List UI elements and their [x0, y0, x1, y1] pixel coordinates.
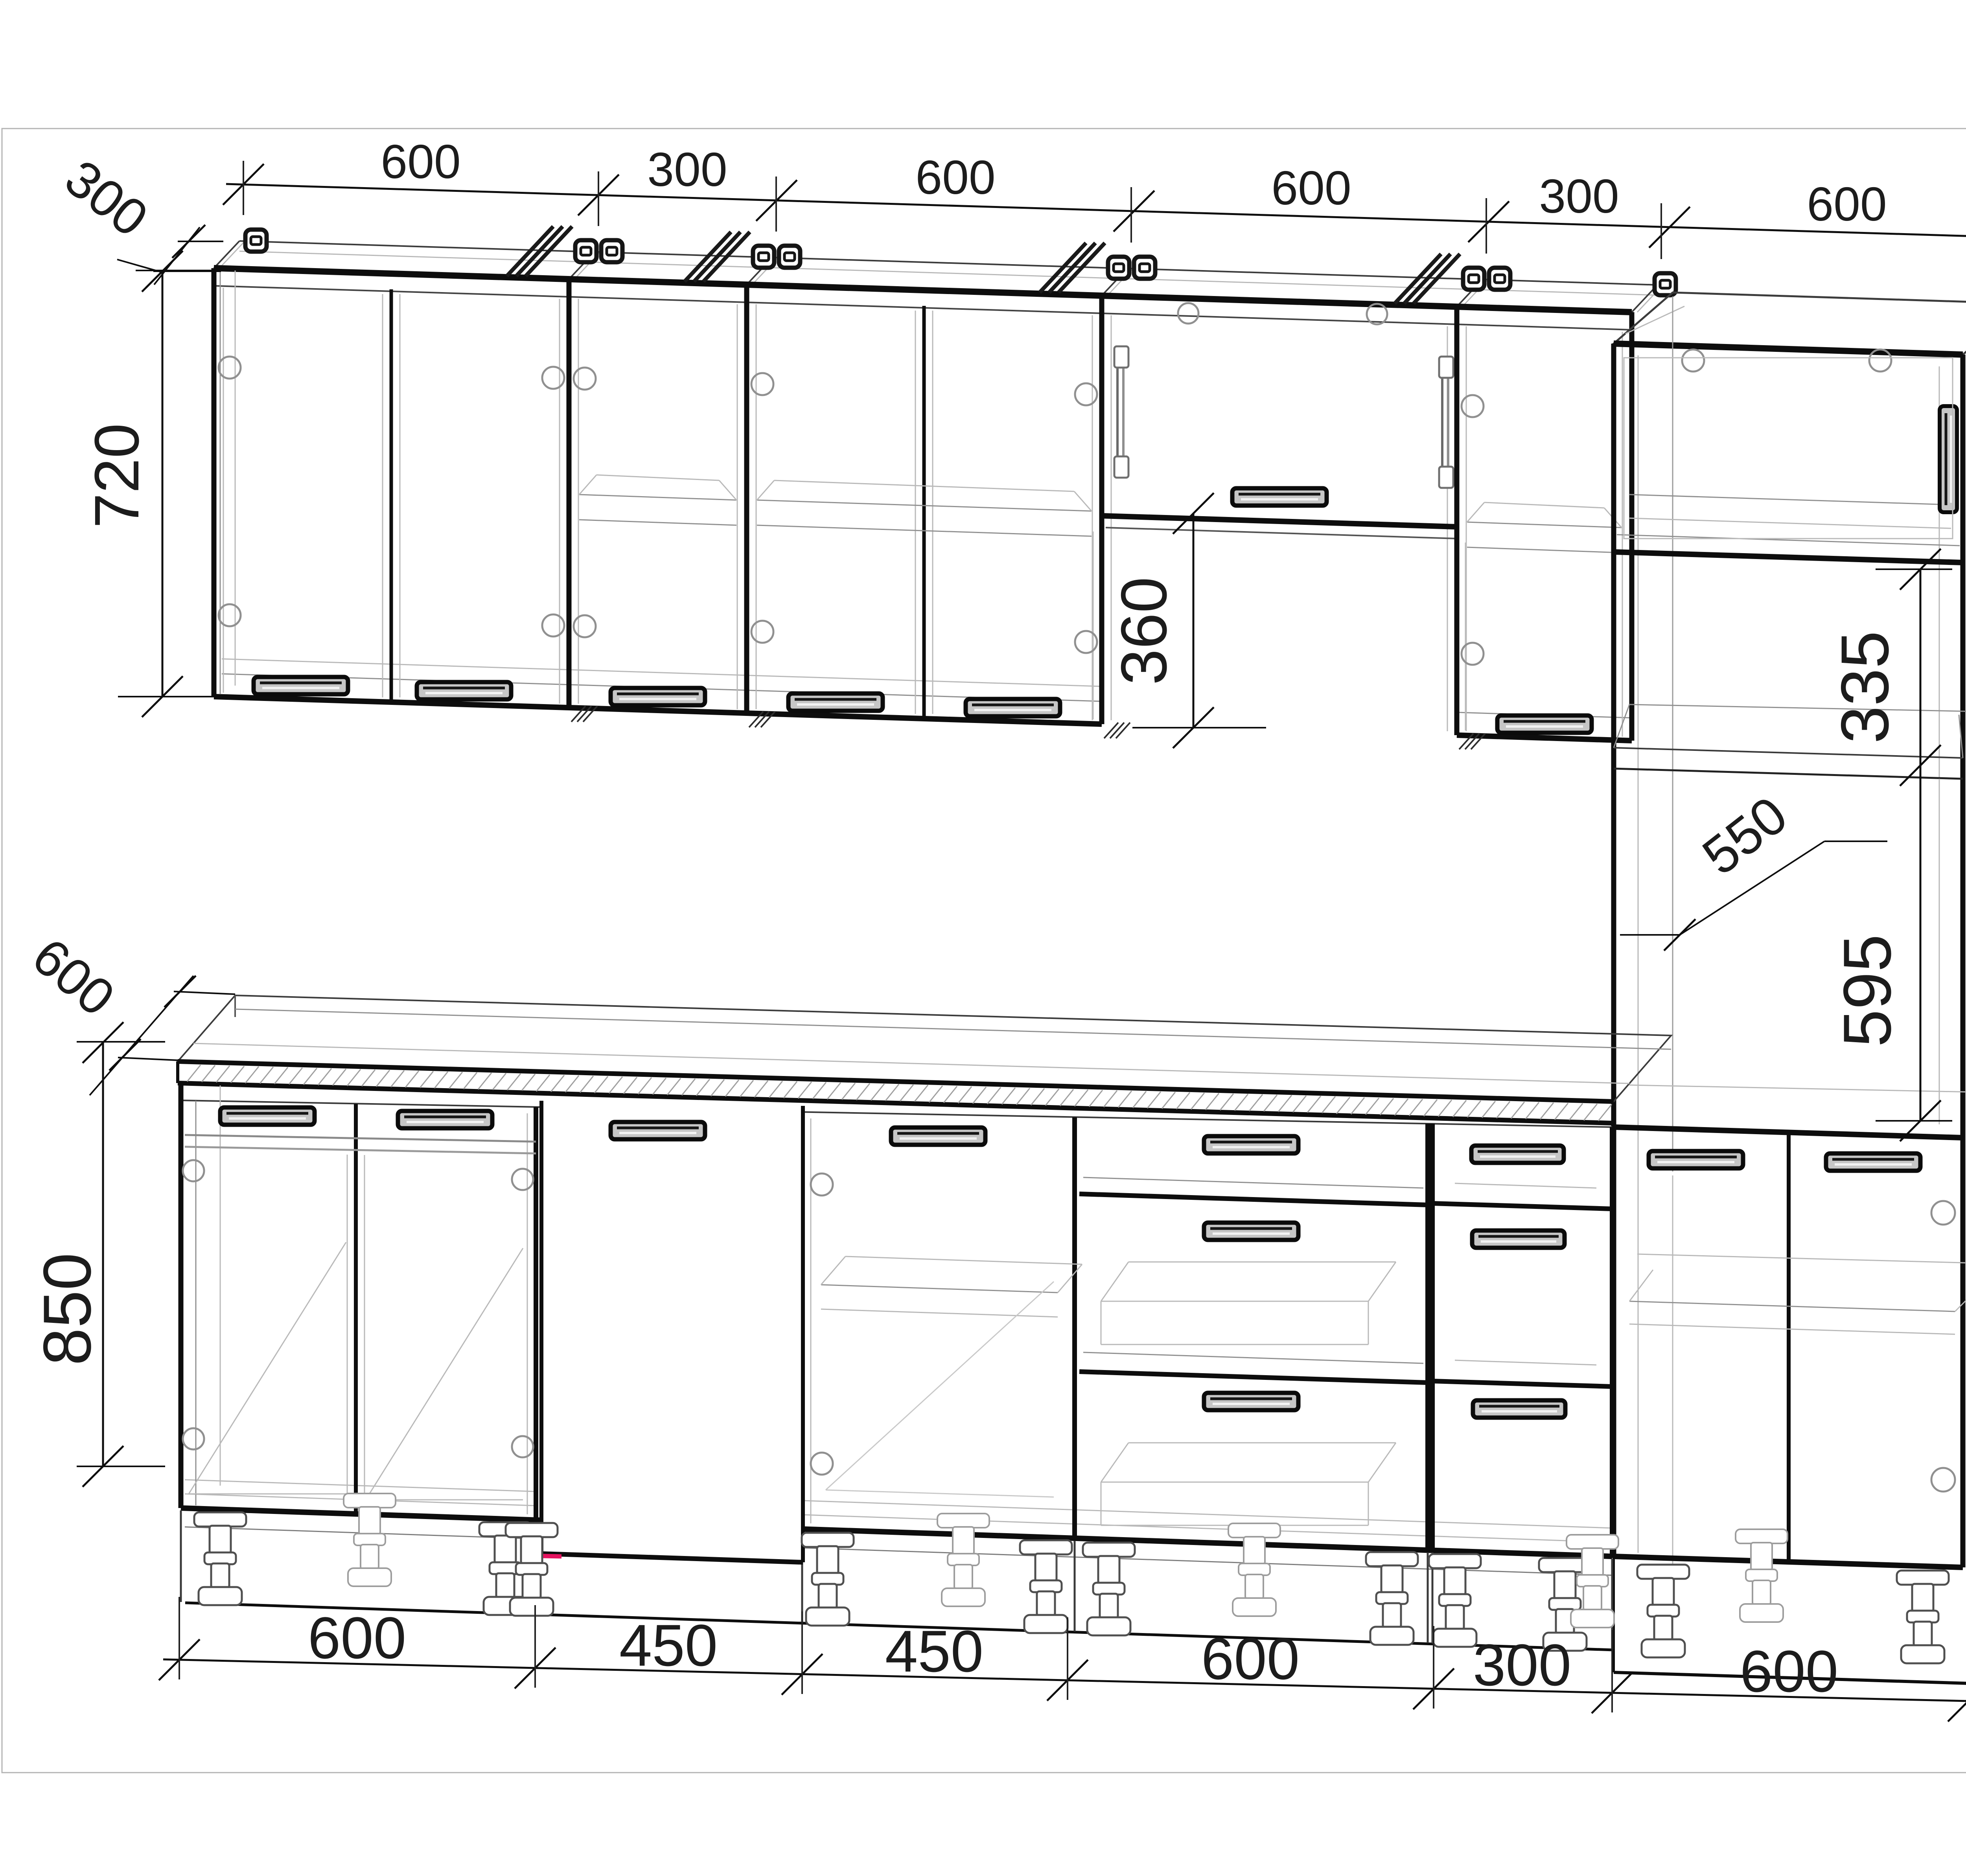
svg-text:600: 600: [1201, 1626, 1300, 1692]
svg-text:850: 850: [29, 1253, 105, 1366]
svg-text:600: 600: [381, 135, 461, 188]
svg-text:600: 600: [1271, 161, 1351, 215]
svg-text:300: 300: [1539, 169, 1619, 223]
svg-text:450: 450: [619, 1612, 718, 1678]
svg-text:300: 300: [1473, 1632, 1571, 1698]
svg-text:300: 300: [647, 143, 727, 196]
svg-text:595: 595: [1830, 934, 1905, 1047]
svg-text:600: 600: [308, 1605, 406, 1671]
svg-text:450: 450: [885, 1618, 983, 1684]
svg-text:600: 600: [915, 151, 996, 204]
svg-text:360: 360: [1108, 577, 1180, 685]
svg-text:600: 600: [1740, 1638, 1838, 1704]
svg-text:600: 600: [1807, 177, 1887, 231]
svg-text:720: 720: [81, 423, 152, 528]
svg-text:335: 335: [1827, 631, 1903, 744]
